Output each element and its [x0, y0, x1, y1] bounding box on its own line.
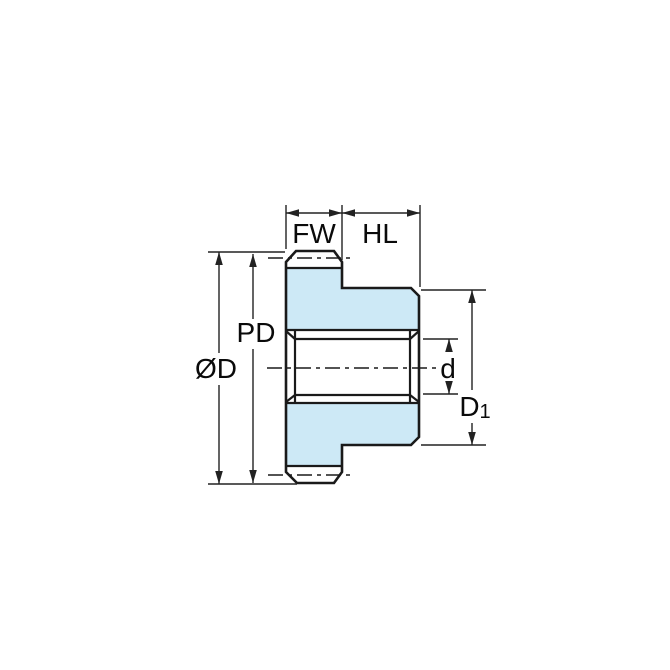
hub-length-label: HL [362, 218, 398, 249]
hub-diameter-letter: D [459, 391, 479, 422]
bore-chamfer-diagonal-tr [410, 331, 419, 339]
dimension-d-d1: d D1 [421, 290, 491, 445]
outside-diameter-label: ØD [195, 353, 237, 384]
bore-chamfer-diagonal-br [410, 395, 419, 402]
gear-lower-section-fill [286, 403, 419, 466]
drawing-canvas: FW HL ØD PD d D1 [0, 0, 670, 670]
face-width-label: FW [292, 218, 336, 249]
gear-technical-drawing: FW HL ØD PD d D1 [0, 0, 670, 670]
hub-diameter-subscript: 1 [480, 401, 491, 423]
hub-diameter-label: D1 [459, 391, 490, 423]
bore-chamfer-diagonal-bl [286, 395, 295, 402]
gear-upper-section-fill [286, 268, 419, 330]
bore-chamfer-diagonal-tl [286, 331, 295, 339]
gear-body [286, 251, 419, 483]
pitch-diameter-label: PD [237, 317, 276, 348]
bore-diameter-label: d [440, 353, 456, 384]
